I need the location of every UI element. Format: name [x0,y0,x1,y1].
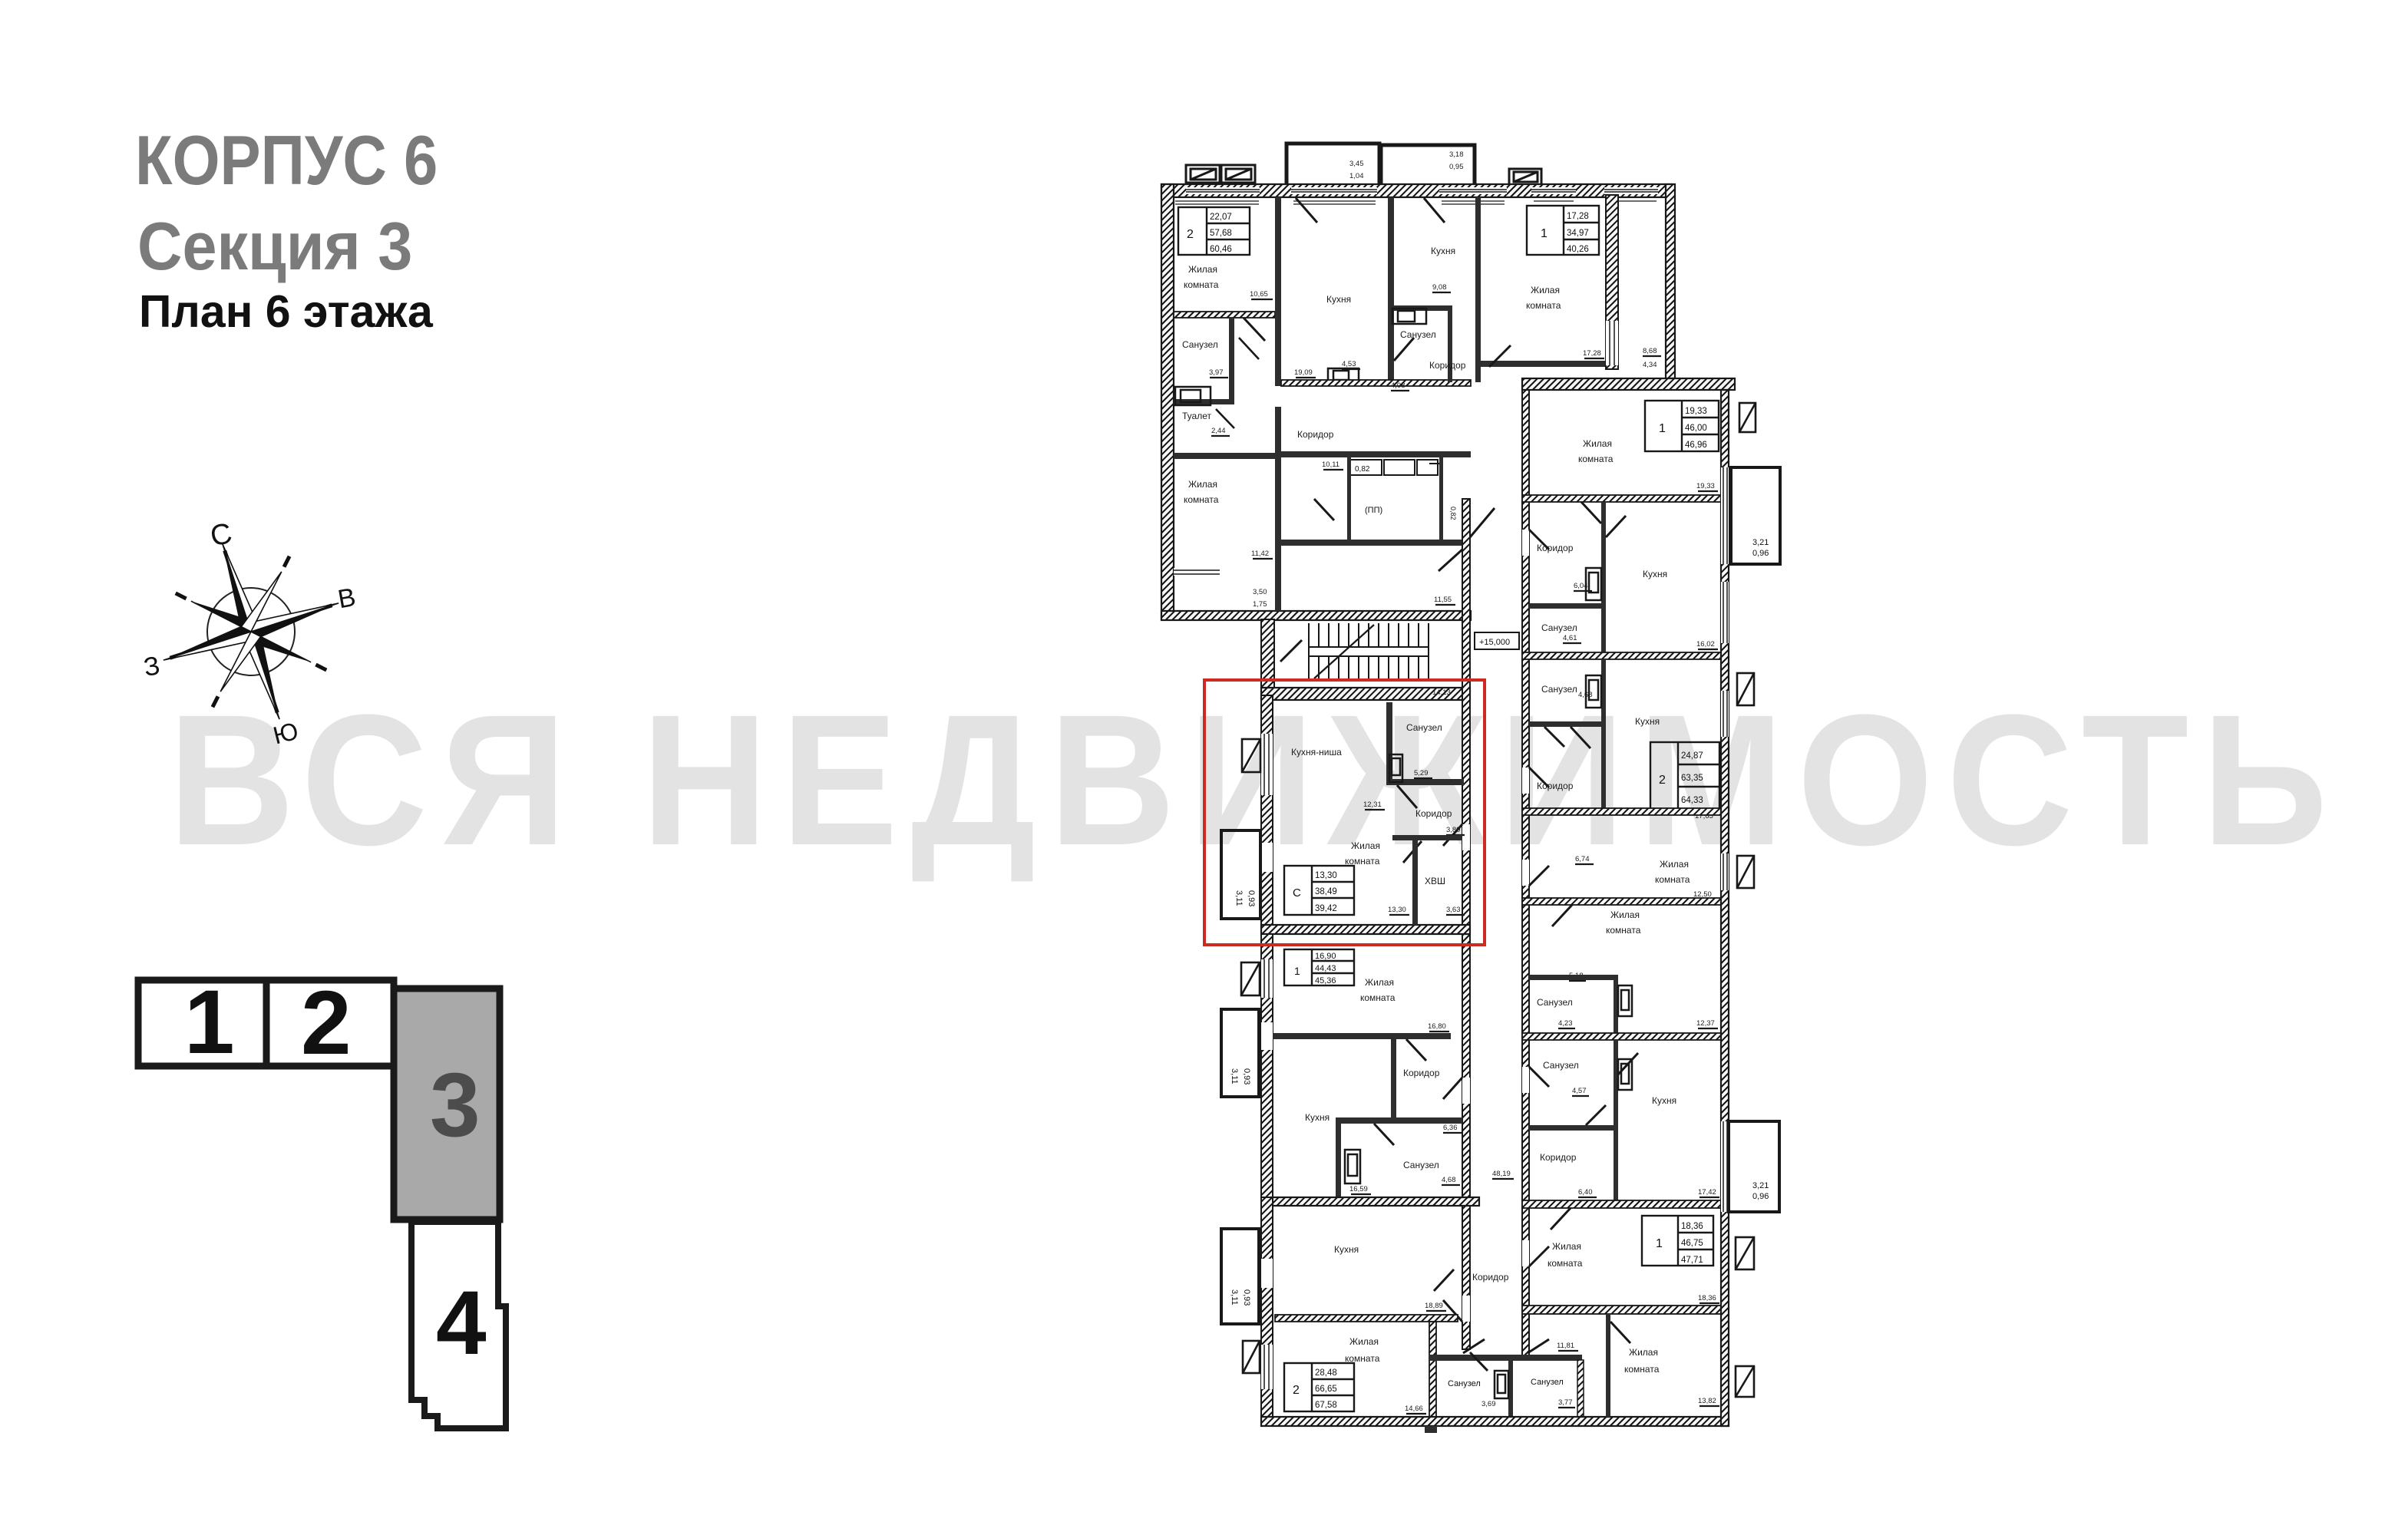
svg-text:Санузел: Санузел [1182,339,1218,350]
svg-text:60,46: 60,46 [1210,245,1232,254]
svg-text:З: З [141,651,162,682]
svg-text:57,68: 57,68 [1210,229,1232,238]
svg-text:3,77: 3,77 [1558,1398,1573,1407]
svg-text:комната: комната [1184,494,1219,505]
svg-text:Туалет: Туалет [1182,411,1211,421]
svg-text:Жилая: Жилая [1349,1336,1379,1347]
svg-text:2: 2 [1293,1384,1300,1397]
svg-text:Жилая: Жилая [1583,438,1612,449]
svg-text:63,35: 63,35 [1681,774,1703,783]
svg-text:6,40: 6,40 [1578,1188,1593,1197]
svg-text:Кухня: Кухня [1334,1244,1359,1255]
svg-text:С: С [207,517,235,553]
svg-text:8,68: 8,68 [1643,347,1657,355]
svg-text:19,09: 19,09 [1294,368,1313,377]
svg-text:Жилая: Жилая [1531,285,1560,295]
svg-text:47,71: 47,71 [1681,1256,1703,1265]
svg-text:3,21: 3,21 [1752,538,1769,547]
svg-text:18,36: 18,36 [1681,1222,1703,1231]
svg-text:Жилая: Жилая [1629,1347,1658,1358]
svg-text:3,50: 3,50 [1253,588,1267,596]
svg-text:66,65: 66,65 [1315,1385,1337,1394]
svg-text:22,07: 22,07 [1210,213,1232,222]
svg-text:комната: комната [1655,874,1690,885]
svg-text:Коридор: Коридор [1540,1152,1577,1163]
svg-text:2: 2 [1659,774,1666,787]
svg-text:2: 2 [1187,228,1194,241]
svg-text:3,97: 3,97 [1209,368,1224,377]
svg-text:4,23: 4,23 [1558,1019,1573,1028]
svg-text:18,89: 18,89 [1425,1302,1443,1310]
svg-text:0,95: 0,95 [1449,163,1464,171]
svg-text:3,11: 3,11 [1230,1289,1239,1306]
svg-text:3: 3 [430,1055,481,1156]
svg-text:4,61: 4,61 [1563,634,1577,642]
svg-text:Жилая: Жилая [1610,909,1640,920]
svg-text:комната: комната [1526,300,1561,311]
svg-text:17,28: 17,28 [1583,349,1601,358]
svg-text:комната: комната [1578,454,1614,464]
svg-text:0,82: 0,82 [1449,507,1457,520]
svg-text:Кухня: Кухня [1643,569,1667,579]
svg-text:комната: комната [1548,1258,1583,1269]
svg-text:0,82: 0,82 [1355,465,1370,474]
svg-text:Коридор: Коридор [1537,781,1574,791]
svg-text:9,08: 9,08 [1432,283,1447,292]
svg-text:4,08: 4,08 [1391,381,1405,390]
svg-text:3,11: 3,11 [1230,1068,1239,1084]
svg-text:1,04: 1,04 [1349,172,1364,180]
svg-text:Жилая: Жилая [1188,479,1217,490]
svg-text:Жилая: Жилая [1552,1241,1581,1252]
svg-text:В: В [335,583,358,614]
svg-text:44,43: 44,43 [1315,964,1336,973]
svg-text:4,57: 4,57 [1572,1087,1587,1095]
svg-text:10,11: 10,11 [1322,460,1339,469]
svg-text:Кухня: Кухня [1431,246,1455,256]
svg-text:Коридор: Коридор [1429,360,1466,371]
svg-text:10,65: 10,65 [1250,290,1268,299]
svg-text:Коридор: Коридор [1403,1068,1440,1078]
svg-text:Коридор: Коридор [1537,543,1574,553]
svg-text:+15,000: +15,000 [1479,638,1510,647]
svg-text:4,68: 4,68 [1442,1176,1456,1184]
svg-text:14,66: 14,66 [1405,1405,1423,1413]
svg-text:1: 1 [1659,422,1666,435]
svg-text:2,44: 2,44 [1211,427,1226,435]
svg-text:0,93: 0,93 [1242,1289,1251,1306]
svg-text:Санузел: Санузел [1400,329,1436,340]
svg-text:3,18: 3,18 [1449,150,1464,159]
svg-text:Санузел: Санузел [1403,1160,1439,1170]
svg-text:11,81: 11,81 [1557,1342,1574,1350]
svg-text:3,45: 3,45 [1349,160,1364,168]
svg-text:Кухня: Кухня [1652,1095,1676,1106]
svg-text:17,28: 17,28 [1567,212,1589,221]
svg-text:46,96: 46,96 [1685,441,1707,450]
svg-text:4,53: 4,53 [1342,360,1356,368]
svg-text:46,00: 46,00 [1685,424,1707,433]
svg-text:1: 1 [184,972,235,1073]
svg-text:19,33: 19,33 [1685,407,1707,416]
svg-text:24,87: 24,87 [1681,751,1703,761]
svg-text:Коридор: Коридор [1297,429,1334,440]
svg-text:4: 4 [436,1273,487,1374]
svg-text:Санузел: Санузел [1541,684,1577,695]
svg-text:1,75: 1,75 [1253,600,1267,609]
svg-text:18,36: 18,36 [1698,1294,1716,1302]
svg-text:46,75: 46,75 [1681,1239,1703,1248]
svg-text:12,37: 12,37 [1696,1019,1715,1028]
svg-text:17,42: 17,42 [1698,1188,1716,1197]
svg-text:Кухня: Кухня [1326,294,1351,305]
svg-text:11,42: 11,42 [1251,550,1269,558]
svg-text:2: 2 [301,972,352,1074]
svg-text:16,90: 16,90 [1315,952,1336,961]
svg-text:3,21: 3,21 [1752,1181,1769,1190]
svg-text:(ПП): (ПП) [1365,506,1382,515]
svg-text:1: 1 [1656,1237,1663,1250]
svg-text:Санузел: Санузел [1537,997,1573,1008]
svg-text:Коридор: Коридор [1472,1272,1509,1282]
svg-text:16,80: 16,80 [1428,1022,1446,1031]
svg-text:комната: комната [1624,1364,1660,1375]
svg-text:67,58: 67,58 [1315,1401,1337,1410]
svg-text:комната: комната [1606,925,1641,936]
svg-text:45,36: 45,36 [1315,976,1336,985]
svg-text:Санузел: Санузел [1448,1379,1481,1388]
svg-text:3,69: 3,69 [1481,1400,1496,1408]
svg-text:Санузел: Санузел [1541,622,1577,633]
svg-text:Жилая: Жилая [1660,859,1689,870]
svg-text:Жилая: Жилая [1188,264,1217,275]
svg-text:1: 1 [1294,965,1300,977]
svg-text:Кухня: Кухня [1305,1112,1330,1123]
svg-text:Кухня: Кухня [1635,716,1660,727]
svg-text:48,19: 48,19 [1492,1170,1511,1178]
svg-text:комната: комната [1184,279,1219,290]
svg-text:Санузел: Санузел [1531,1378,1564,1387]
svg-text:6,74: 6,74 [1575,855,1590,863]
svg-text:комната: комната [1360,992,1396,1003]
svg-text:19,33: 19,33 [1696,482,1715,490]
svg-text:Жилая: Жилая [1365,977,1394,988]
svg-text:16,02: 16,02 [1696,640,1715,649]
svg-text:13,82: 13,82 [1698,1397,1716,1405]
svg-text:64,33: 64,33 [1681,796,1703,805]
svg-text:Санузел: Санузел [1543,1060,1579,1071]
svg-text:16,59: 16,59 [1349,1185,1368,1193]
svg-text:1: 1 [1541,227,1548,240]
svg-text:11,55: 11,55 [1434,596,1452,604]
svg-text:Ю: Ю [270,717,301,750]
svg-text:0,96: 0,96 [1752,1192,1769,1201]
svg-text:40,26: 40,26 [1567,245,1589,254]
svg-text:0,93: 0,93 [1242,1068,1251,1084]
svg-text:4,34: 4,34 [1643,361,1657,369]
svg-text:0,96: 0,96 [1752,549,1769,558]
svg-text:6,36: 6,36 [1443,1124,1458,1132]
svg-text:28,48: 28,48 [1315,1368,1337,1378]
svg-text:34,97: 34,97 [1567,229,1589,238]
